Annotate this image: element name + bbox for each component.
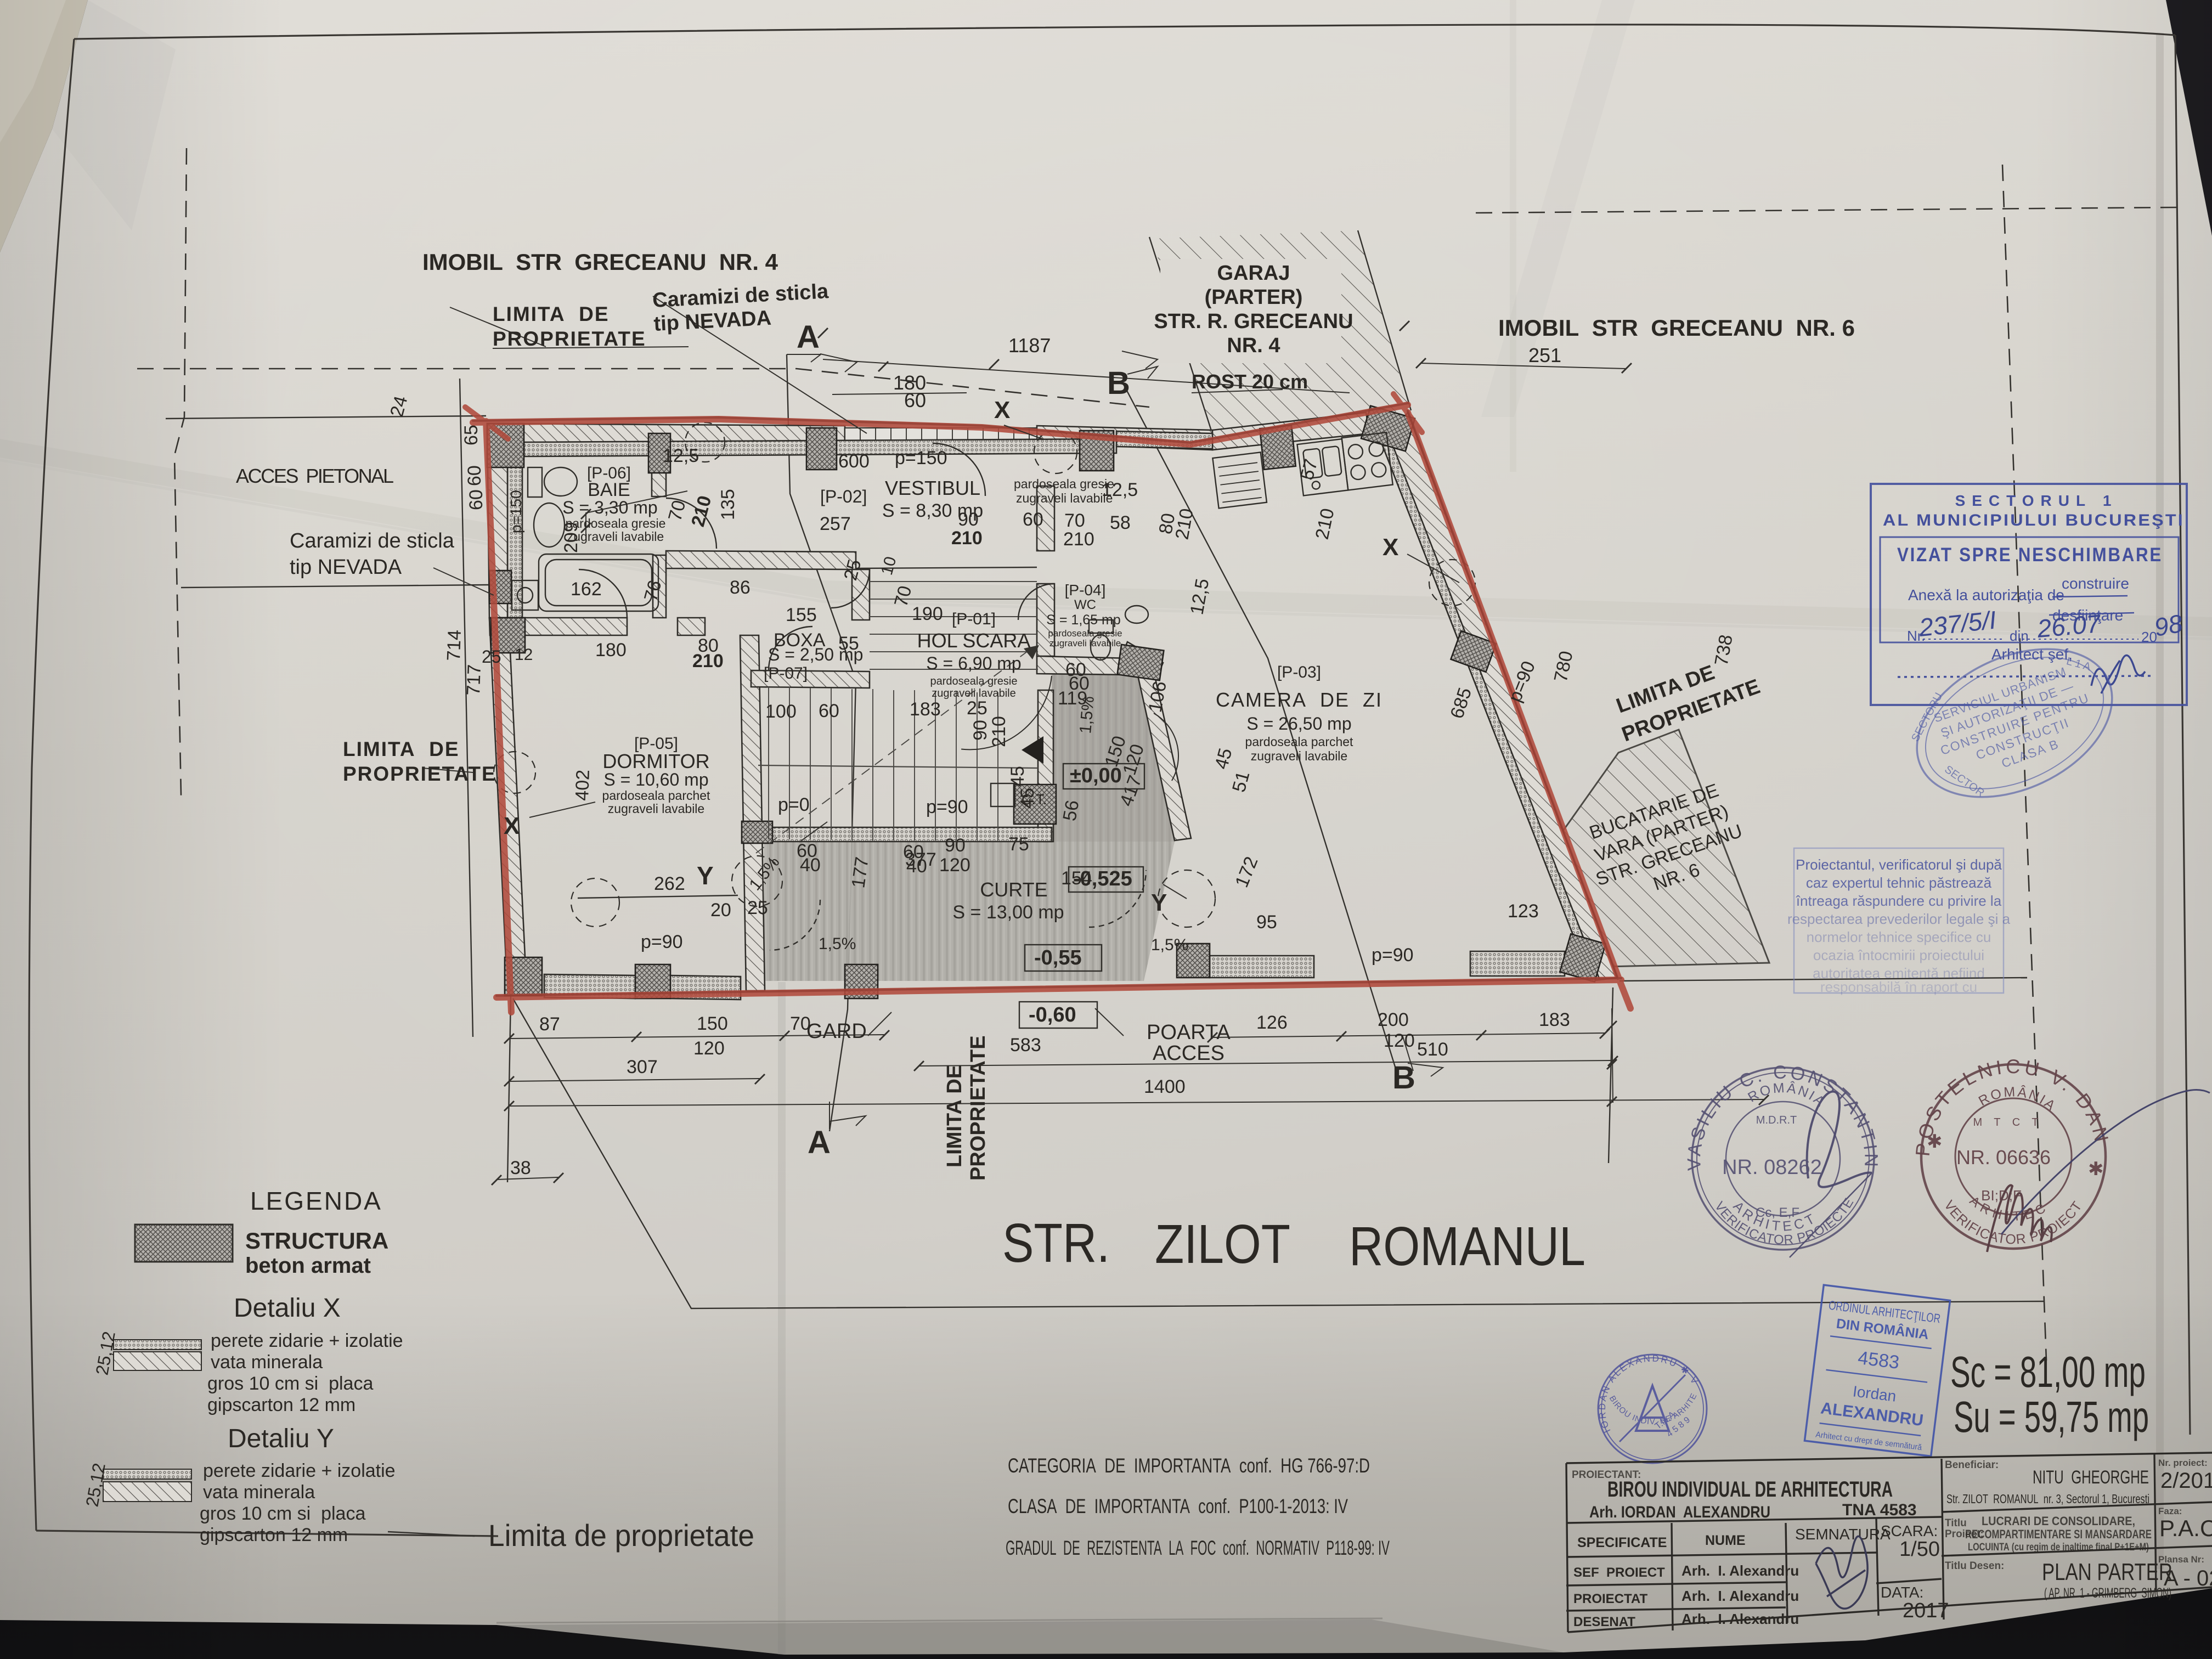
svg-text:NITU GHEORGHE: NITU GHEORGHE — [2033, 1467, 2149, 1488]
svg-text:gros 10 cm si placa: gros 10 cm si placa — [207, 1373, 373, 1394]
svg-text:Y: Y — [697, 861, 714, 890]
svg-text:✱: ✱ — [1927, 1131, 1943, 1152]
svg-text:210: 210 — [692, 651, 724, 672]
svg-text:20: 20 — [710, 900, 731, 921]
svg-text:IMOBIL STR GRECEANU NR. 6: IMOBIL STR GRECEANU NR. 6 — [1498, 315, 1855, 341]
svg-text:Plansa Nr:: Plansa Nr: — [2158, 1554, 2204, 1565]
svg-text:zugraveli lavabile: zugraveli lavabile — [1049, 638, 1121, 648]
svg-text:p=90: p=90 — [1372, 945, 1414, 966]
svg-text:120: 120 — [1384, 1030, 1415, 1051]
svg-text:Y: Y — [1151, 889, 1167, 916]
svg-text:1,5%: 1,5% — [819, 935, 856, 953]
svg-text:A: A — [797, 319, 820, 355]
svg-text:-0,60: -0,60 — [1029, 1003, 1076, 1026]
svg-text:60: 60 — [904, 389, 926, 411]
svg-text:X: X — [504, 812, 520, 839]
svg-text:75: 75 — [1008, 834, 1029, 855]
svg-text:183: 183 — [1539, 1009, 1570, 1030]
svg-text:pardoseala gresie: pardoseala gresie — [1014, 477, 1114, 491]
svg-text:zugraveli lavabile: zugraveli lavabile — [567, 529, 664, 544]
svg-text:177: 177 — [848, 856, 873, 889]
svg-text:40: 40 — [800, 855, 821, 876]
svg-text:402: 402 — [572, 769, 594, 801]
svg-text:12,5: 12,5 — [1102, 479, 1138, 500]
svg-text:ACCES: ACCES — [1153, 1042, 1224, 1065]
svg-text:377: 377 — [905, 849, 936, 870]
svg-text:70: 70 — [1064, 510, 1085, 531]
svg-text:✱: ✱ — [2088, 1159, 2104, 1180]
svg-text:TNA 4583: TNA 4583 — [1842, 1501, 1917, 1519]
svg-text:600: 600 — [838, 451, 870, 472]
svg-text:p=90: p=90 — [641, 932, 683, 952]
svg-text:45: 45 — [1017, 788, 1038, 809]
svg-text:SECTORUL 1: SECTORUL 1 — [1955, 492, 2118, 509]
svg-text:PROPRIETATE: PROPRIETATE — [967, 1035, 990, 1181]
svg-text:S = 3,30 mp: S = 3,30 mp — [562, 498, 657, 517]
svg-text:180: 180 — [595, 640, 627, 661]
svg-text:respectarea prevederilor legal: respectarea prevederilor legale şi a — [1787, 911, 2011, 927]
svg-text:CLASA DE IMPORTANTA conf.: CLASA DE IMPORTANTA conf. P100-1-2013: I… — [1008, 1495, 1348, 1517]
svg-text:LEGENDA: LEGENDA — [250, 1187, 382, 1215]
svg-text:154: 154 — [1061, 868, 1092, 889]
svg-text:pardoseala parchet: pardoseala parchet — [1245, 735, 1354, 749]
svg-text:normelor tehnice specifice cu: normelor tehnice specifice cu — [1807, 929, 1991, 945]
svg-text:Cc, E,F: Cc, E,F — [1756, 1205, 1799, 1220]
svg-text:[P-01]: [P-01] — [952, 610, 996, 628]
svg-text:X: X — [1383, 534, 1398, 561]
svg-text:DATA:: DATA: — [1881, 1584, 1923, 1601]
svg-text:HOL SCARA: HOL SCARA — [917, 629, 1031, 652]
svg-text:PLAN PARTER: PLAN PARTER — [2042, 1559, 2172, 1585]
svg-text:pardoseala gresie: pardoseala gresie — [1048, 628, 1122, 639]
svg-text:[P-07]: [P-07] — [764, 664, 808, 682]
svg-text:Nr. proiect:: Nr. proiect: — [2158, 1458, 2208, 1468]
svg-text:2/2017: 2/2017 — [2160, 1469, 2212, 1493]
svg-text:GARAJ: GARAJ — [1217, 262, 1290, 285]
svg-text:GARD: GARD — [806, 1020, 867, 1043]
svg-text:LIMITA DE: LIMITA DE — [943, 1065, 966, 1167]
svg-text:1,5%: 1,5% — [1151, 936, 1188, 954]
svg-text:123: 123 — [1508, 901, 1539, 922]
svg-text:zugraveli lavabile: zugraveli lavabile — [1016, 491, 1113, 505]
svg-text:210: 210 — [951, 528, 983, 549]
svg-text:60: 60 — [819, 701, 839, 721]
svg-text:60: 60 — [1023, 509, 1043, 530]
svg-text:responsabilă în raport cu: responsabilă în raport cu — [1820, 979, 1977, 995]
svg-text:SPECIFICATE: SPECIFICATE — [1577, 1535, 1667, 1550]
svg-text:p=150: p=150 — [895, 448, 947, 469]
svg-text:Arhitect şef,: Arhitect şef, — [1991, 646, 2073, 663]
svg-text:95: 95 — [1256, 912, 1277, 933]
svg-text:Titlu: Titlu — [1945, 1517, 1967, 1529]
svg-text:58: 58 — [1110, 512, 1131, 533]
svg-text:B: B — [1392, 1060, 1415, 1096]
svg-text:X: X — [994, 397, 1010, 424]
svg-text:gipscarton 12 mm: gipscarton 12 mm — [207, 1395, 356, 1415]
svg-text:190: 190 — [912, 603, 943, 624]
svg-text:beton armat: beton armat — [245, 1254, 371, 1278]
svg-text:210: 210 — [1063, 529, 1094, 550]
svg-text:257: 257 — [820, 513, 851, 534]
svg-text:LIMITA DE: LIMITA DE — [493, 303, 610, 325]
svg-text:ROST 20 cm: ROST 20 cm — [1192, 370, 1308, 393]
svg-text:B: B — [1107, 365, 1130, 401]
svg-text:VIZAT SPRE NESCHIMBARE: VIZAT SPRE NESCHIMBARE — [1897, 544, 2163, 566]
svg-text:717: 717 — [463, 664, 485, 696]
svg-text:26.07: 26.07 — [2035, 609, 2102, 643]
svg-text:98: 98 — [2152, 609, 2185, 642]
svg-text:25: 25 — [747, 898, 768, 918]
svg-text:135: 135 — [718, 489, 738, 520]
svg-text:90: 90 — [958, 509, 979, 530]
svg-text:M.D.R.T: M.D.R.T — [1756, 1114, 1797, 1126]
svg-text:NR. 4: NR. 4 — [1227, 334, 1280, 357]
svg-text:583: 583 — [1010, 1035, 1041, 1056]
svg-text:S = 10,60 mp: S = 10,60 mp — [603, 770, 708, 789]
svg-text:183: 183 — [910, 699, 941, 720]
svg-text:25: 25 — [967, 698, 988, 719]
svg-text:RECOMPARTIMENTARE SI MANSARDAR: RECOMPARTIMENTARE SI MANSARDARE — [1965, 1527, 2152, 1541]
svg-text:162: 162 — [571, 579, 602, 600]
svg-text:STR. R. GRECEANU: STR. R. GRECEANU — [1154, 310, 1353, 333]
svg-text:p=150: p=150 — [507, 490, 524, 533]
svg-text:Caramizi de sticla: Caramizi de sticla — [290, 529, 455, 552]
svg-text:55: 55 — [838, 633, 859, 654]
svg-text:zugraveli lavabile: zugraveli lavabile — [608, 802, 704, 816]
svg-text:Str. ZILOT ROMANUL nr. 3, Se: Str. ZILOT ROMANUL nr. 3, Sectorul 1, Bu… — [1946, 1492, 2149, 1506]
svg-text:Detaliu Y: Detaliu Y — [228, 1424, 334, 1453]
svg-text:Arh. I. Alexandru: Arh. I. Alexandru — [1681, 1562, 1799, 1579]
svg-text:56: 56 — [1059, 799, 1083, 823]
svg-text:M T C T: M T C T — [1973, 1116, 2042, 1128]
svg-text:LIMITA DE: LIMITA DE — [343, 738, 460, 760]
svg-text:tip NEVADA: tip NEVADA — [290, 556, 402, 579]
svg-text:Anexă la autorizaţia de: Anexă la autorizaţia de — [1908, 586, 2064, 603]
svg-text:ACCES PIETONAL: ACCES PIETONAL — [236, 465, 394, 487]
svg-text:60: 60 — [466, 489, 487, 510]
svg-text:ocazia întocmirii proiectului: ocazia întocmirii proiectului — [1813, 947, 1984, 963]
svg-text:CURTE: CURTE — [980, 878, 1047, 901]
svg-text:perete zidarie + izolatie: perete zidarie + izolatie — [211, 1330, 403, 1351]
svg-text:(PARTER): (PARTER) — [1205, 286, 1303, 309]
svg-text:120: 120 — [693, 1038, 725, 1059]
svg-text:Su = 59,75 mp: Su = 59,75 mp — [1954, 1392, 2149, 1441]
svg-text:VESTIBUL: VESTIBUL — [885, 477, 980, 499]
svg-text:vata minerala: vata minerala — [211, 1352, 323, 1373]
svg-text:construire: construire — [2062, 575, 2129, 592]
svg-text:209: 209 — [561, 522, 582, 553]
svg-text:AL MUNICIPIULUI BUCUREŞTI: AL MUNICIPIULUI BUCUREŞTI — [1883, 511, 2185, 529]
svg-text:LOCUINTA (cu regim de inaltime: LOCUINTA (cu regim de inaltime final P+1… — [1968, 1542, 2149, 1553]
svg-text:CATEGORIA DE IMPORTANTA con: CATEGORIA DE IMPORTANTA conf. HG 766-97:… — [1008, 1454, 1370, 1477]
svg-text:WC: WC — [1074, 597, 1096, 612]
svg-text:STRUCTURA: STRUCTURA — [245, 1228, 388, 1254]
svg-text:90: 90 — [970, 720, 991, 741]
svg-text:zugraveli lavabile: zugraveli lavabile — [1251, 749, 1347, 763]
svg-text:120: 120 — [939, 855, 970, 876]
svg-text:întreaga răspundere cu privire: întreaga răspundere cu privire la — [1796, 893, 2002, 909]
svg-text:SCARA:: SCARA: — [1881, 1522, 1938, 1539]
svg-text:pardoseala parchet: pardoseala parchet — [602, 788, 711, 803]
svg-text:Sc = 81,00 mp: Sc = 81,00 mp — [1950, 1347, 2146, 1396]
svg-text:SEF PROIECT: SEF PROIECT — [1573, 1565, 1665, 1580]
svg-text:Arh. I. Alexandru: Arh. I. Alexandru — [1681, 1611, 1799, 1627]
svg-text:DESENAT: DESENAT — [1573, 1615, 1635, 1629]
svg-text:45: 45 — [1007, 766, 1028, 787]
svg-text:38: 38 — [510, 1158, 531, 1178]
svg-text:p=0: p=0 — [778, 794, 810, 815]
svg-text:p=90: p=90 — [926, 797, 968, 817]
svg-text:perete zidarie + izolatie: perete zidarie + izolatie — [203, 1460, 396, 1481]
svg-text:1187: 1187 — [1008, 334, 1051, 357]
svg-text:PROPRIETATE: PROPRIETATE — [493, 328, 646, 350]
svg-text:S = 6,90 mp: S = 6,90 mp — [926, 653, 1021, 673]
svg-text:DORMITOR: DORMITOR — [602, 750, 709, 772]
svg-text:ZILOT: ZILOT — [1155, 1214, 1290, 1275]
svg-text:S = 13,00 mp: S = 13,00 mp — [952, 902, 1064, 923]
svg-text:[P-02]: [P-02] — [820, 487, 867, 506]
svg-text:25: 25 — [482, 647, 501, 667]
svg-text:210: 210 — [989, 716, 1009, 747]
svg-text:Arh. IORDAN ALEXANDRU: Arh. IORDAN ALEXANDRU — [1589, 1503, 1770, 1521]
svg-text:Limita de proprietate: Limita de proprietate — [488, 1518, 754, 1553]
svg-text:Arh. I. Alexandru: Arh. I. Alexandru — [1681, 1588, 1799, 1604]
svg-text:STR.: STR. — [1002, 1212, 1110, 1274]
svg-text:86: 86 — [730, 577, 751, 598]
svg-text:[P-04]: [P-04] — [1065, 582, 1106, 599]
svg-text:A - 02: A - 02 — [2164, 1566, 2212, 1590]
svg-text:P.A.C.: P.A.C. — [2159, 1515, 2212, 1541]
svg-text:200: 200 — [1378, 1009, 1409, 1030]
svg-text:90: 90 — [945, 835, 966, 856]
svg-text:ROMANUL: ROMANUL — [1349, 1216, 1585, 1277]
svg-text:262: 262 — [654, 873, 685, 894]
svg-text:Titlu Desen:: Titlu Desen: — [1945, 1560, 2004, 1572]
svg-text:65: 65 — [461, 425, 482, 445]
svg-text:GRADUL DE REZISTENTA LA FO: GRADUL DE REZISTENTA LA FOC conf. NORMAT… — [1006, 1537, 1390, 1559]
svg-text:NUME: NUME — [1705, 1533, 1746, 1548]
svg-text:307: 307 — [627, 1057, 658, 1077]
svg-text:caz expertul tehnic păstrează: caz expertul tehnic păstrează — [1806, 874, 1992, 891]
svg-text:1400: 1400 — [1144, 1076, 1186, 1097]
svg-text:S = 26,50 mp: S = 26,50 mp — [1246, 714, 1351, 733]
svg-text:126: 126 — [1256, 1012, 1288, 1033]
svg-text:POARTA: POARTA — [1147, 1021, 1231, 1044]
svg-text:150: 150 — [697, 1013, 728, 1034]
svg-text:SEMNATURA: SEMNATURA — [1795, 1526, 1891, 1543]
svg-text:100: 100 — [765, 701, 797, 722]
svg-text:Detaliu X: Detaliu X — [234, 1294, 341, 1323]
svg-text:NR. 06636: NR. 06636 — [1956, 1146, 2051, 1169]
svg-text:12: 12 — [515, 646, 533, 664]
svg-text:714: 714 — [443, 629, 465, 661]
svg-text:PROIECTAT: PROIECTAT — [1573, 1592, 1647, 1606]
svg-text:Proiectantul, verificatorul şi: Proiectantul, verificatorul şi după — [1796, 856, 2002, 873]
svg-text:IMOBIL STR GRECEANU NR. 4: IMOBIL STR GRECEANU NR. 4 — [422, 249, 778, 275]
svg-text:vata minerala: vata minerala — [203, 1482, 315, 1503]
svg-text:( AP. NR. 1 - GRIMBERG SIMON): ( AP. NR. 1 - GRIMBERG SIMON) — [2044, 1585, 2171, 1601]
svg-text:12,5: 12,5 — [663, 445, 699, 466]
svg-text:1/50: 1/50 — [1899, 1538, 1940, 1561]
svg-text:60: 60 — [464, 465, 485, 486]
svg-text:251: 251 — [1528, 344, 1561, 366]
svg-text:70: 70 — [790, 1013, 811, 1034]
svg-text:155: 155 — [786, 605, 817, 625]
svg-text:Beneficiar:: Beneficiar: — [1945, 1459, 1999, 1471]
svg-text:2017: 2017 — [1903, 1599, 1949, 1622]
svg-text:1,5%: 1,5% — [1076, 696, 1098, 735]
svg-text:CAMERA DE ZI: CAMERA DE ZI — [1216, 689, 1383, 711]
svg-text:gipscarton 12 mm: gipscarton 12 mm — [200, 1525, 348, 1545]
svg-text:pardoseala gresie: pardoseala gresie — [930, 675, 1018, 687]
svg-text:[P-03]: [P-03] — [1277, 663, 1321, 681]
svg-text:LUCRARI DE CONSOLIDARE,: LUCRARI DE CONSOLIDARE, — [1982, 1514, 2135, 1528]
svg-text:S = 1,65 mp: S = 1,65 mp — [1046, 612, 1121, 628]
svg-text:din: din — [2010, 628, 2029, 644]
svg-text:87: 87 — [539, 1014, 560, 1035]
svg-text:A: A — [808, 1125, 831, 1160]
svg-text:-0,55: -0,55 — [1034, 946, 1082, 969]
svg-text:BIROU INDIVIDUAL DE ARHITECTUR: BIROU INDIVIDUAL DE ARHITECTURA — [1607, 1477, 1893, 1502]
svg-text:gros 10 cm si placa: gros 10 cm si placa — [200, 1503, 365, 1524]
svg-text:510: 510 — [1417, 1039, 1448, 1060]
svg-text:PROPRIETATE: PROPRIETATE — [343, 763, 496, 785]
